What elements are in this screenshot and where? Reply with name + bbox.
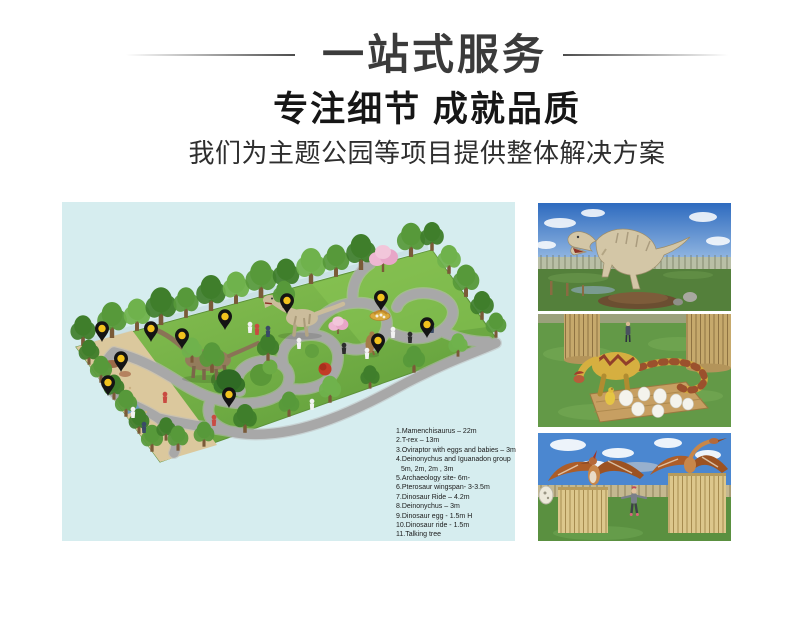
page-tagline: 我们为主题公园等项目提供整体解决方案 [27,140,800,167]
legend-item: 8.Deinonychus – 3m [396,502,516,511]
egg-sculpture [539,486,553,504]
page-subtitle: 专注细节 成就品质 [27,92,800,127]
park-map-panel: 1.Mamenchisaurus – 22m 2.T-rex – 13m 3.O… [62,202,515,541]
photo-trex[interactable] [538,203,731,311]
legend-item: 5.Archaeology site- 6m- [396,474,516,483]
legend-item-continuation: 5m, 2m, 2m , 3m [396,465,516,474]
photo-pterosaurs[interactable] [538,433,731,541]
photo-column [538,203,731,541]
title-row: 一站式服务 [27,34,800,76]
title-rule-left [126,54,295,56]
legend-item: 1.Mamenchisaurus – 22m [396,427,516,436]
header-section: 一站式服务 专注细节 成就品质 我们为主题公园等项目提供整体解决方案 [27,0,800,167]
pterosaurs-photo-illustration [538,433,731,541]
legend-item: 2.T-rex – 13m [396,436,516,445]
dinosaur-eggs-photo-illustration [538,314,731,427]
oviraptor-nest [370,311,390,321]
legend-item: 9.Dinosaur egg - 1.5m H [396,512,516,521]
legend-item: 7.Dinosaur Ride – 4.2m [396,493,516,502]
legend-item: 11.Talking tree [396,530,516,539]
trex-photo-illustration [538,203,731,311]
page-title: 一站式服务 [322,34,547,76]
promo-page: { "header": { "title": "一站式服务", "subtitl… [0,0,800,626]
legend-item: 3.Oviraptor with eggs and babies – 3m [396,446,516,455]
legend-item: 4.Deinonychus and Iguanadon group [396,455,516,464]
map-legend: 1.Mamenchisaurus – 22m 2.T-rex – 13m 3.O… [396,427,516,540]
photo-dinosaur-eggs[interactable] [538,314,731,427]
legend-item: 6.Pterosaur wingspan- 3-3.5m [396,483,516,492]
legend-item: 10.Dinosaur ride - 1.5m [396,521,516,530]
title-rule-right [563,54,728,56]
